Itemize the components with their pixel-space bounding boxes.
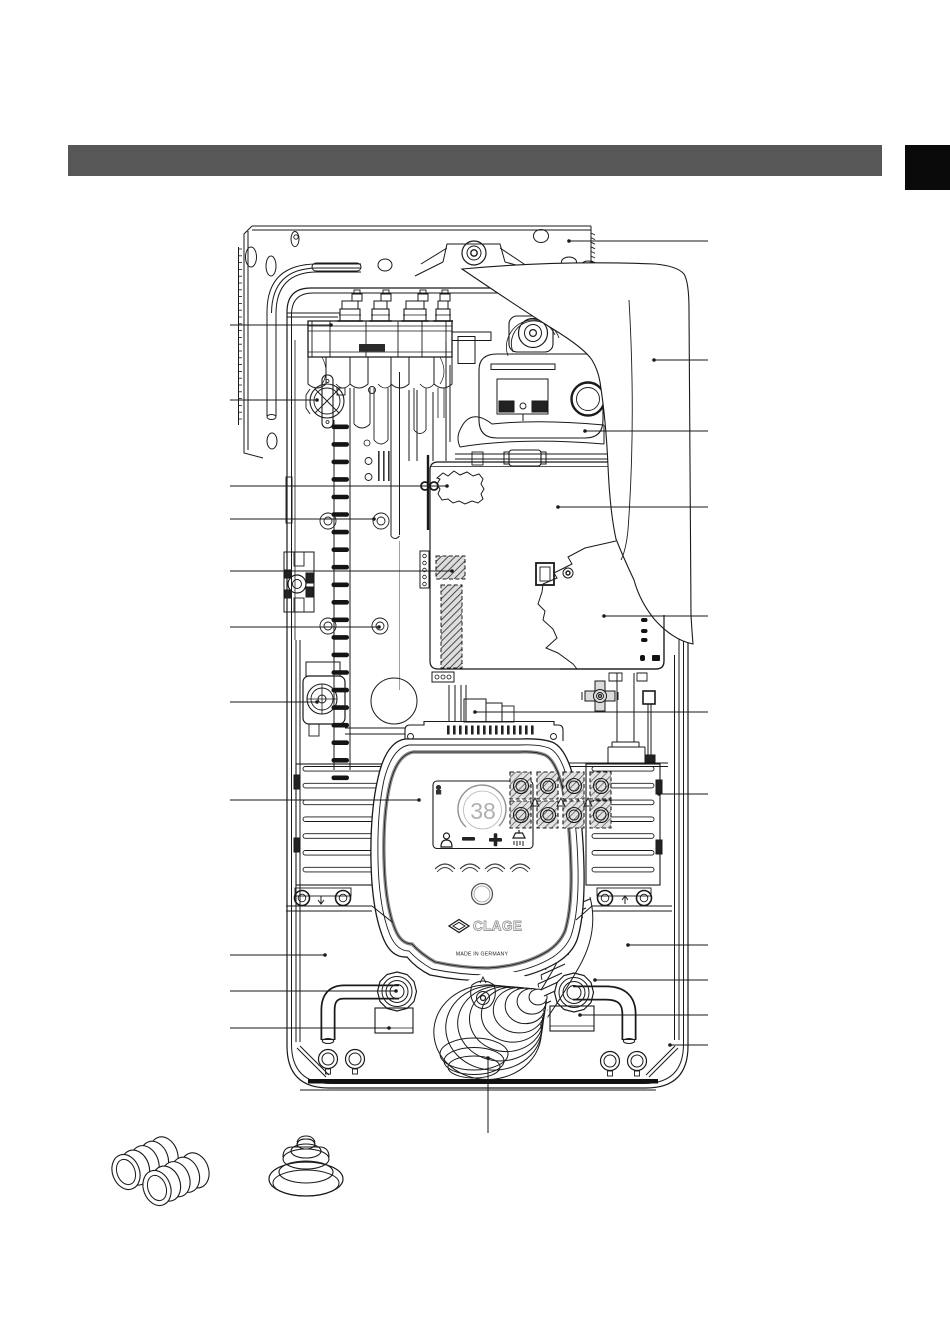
svg-text:MADE IN GERMANY: MADE IN GERMANY (456, 952, 509, 958)
svg-text:38: 38 (470, 798, 496, 824)
svg-text:CLAGE: CLAGE (473, 919, 522, 934)
